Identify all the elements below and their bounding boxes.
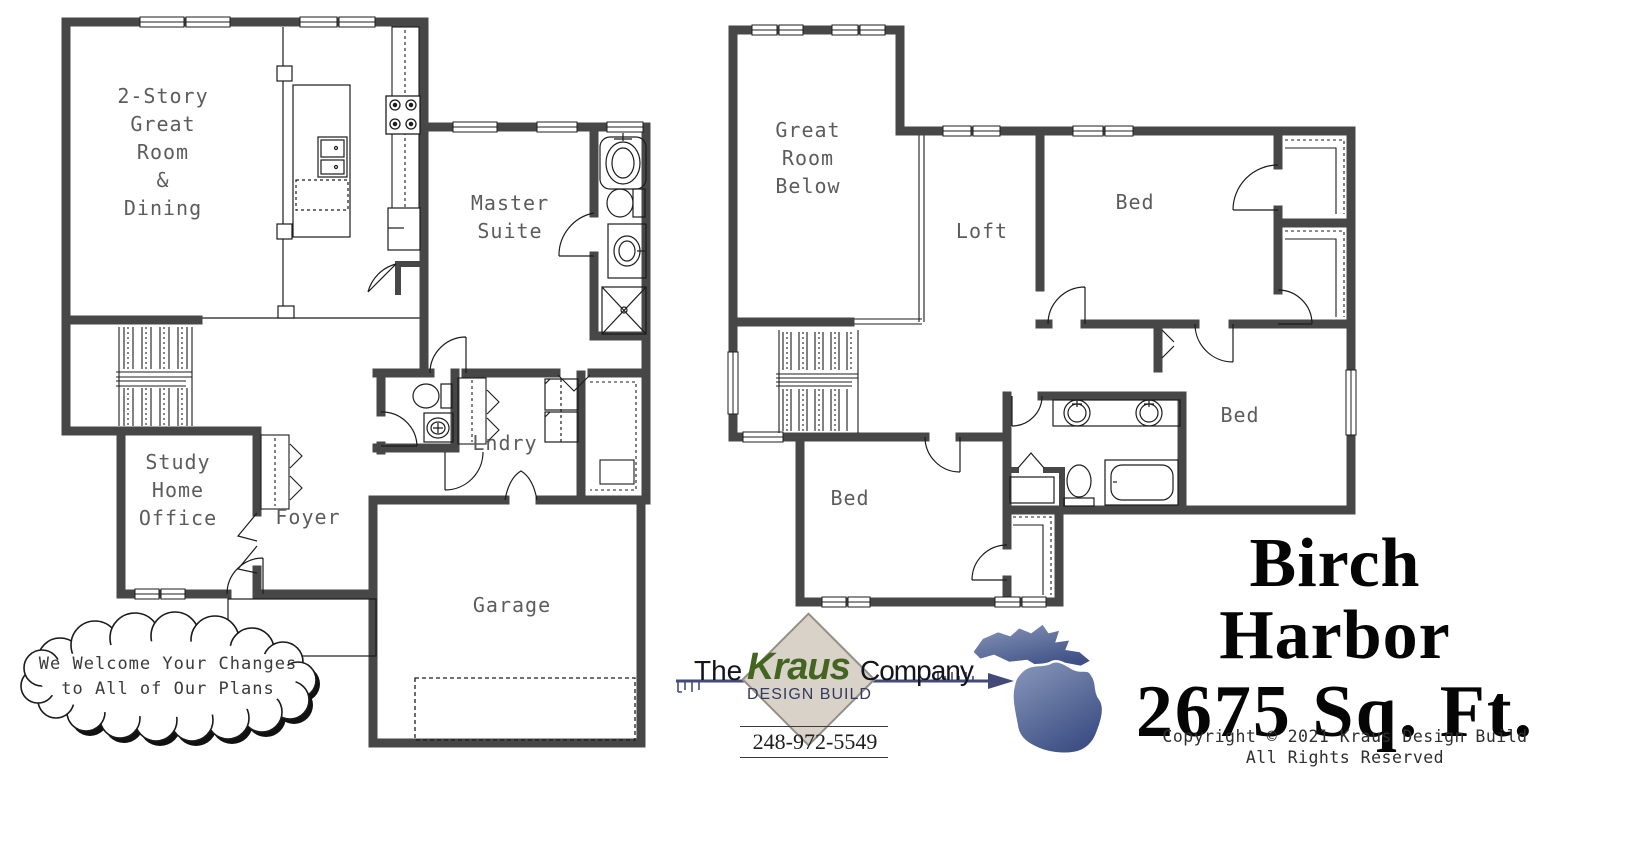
stove-icon [386,96,420,134]
copyright-line1: Copyright © 2021 Kraus Design Build [1140,726,1550,747]
second-floor-windows [728,25,1356,607]
powder-sink-icon [424,413,453,442]
washer-dryer-icon [545,379,578,442]
walkin-closet-shelves [558,375,636,490]
bathtub-icon-2 [1105,460,1178,505]
walkin-closet-2 [1013,517,1051,595]
kitchen-boundary-line [198,27,424,318]
foyer-closet [261,435,302,509]
michigan-icon [972,623,1103,754]
room-label-foyer: Foyer [275,503,340,531]
toilet-icon [607,189,645,217]
bedroom-closets [1285,140,1344,317]
cloud-callout-text: We Welcome Your Changes to All of Our Pl… [39,652,297,702]
room-label-garage: Garage [473,591,551,619]
double-vanity [1053,400,1180,426]
room-label-master-suite: Master Suite [471,189,549,245]
room-label-study: Study Home Office [139,448,217,532]
stairs [116,327,192,426]
vanity-sink-icon [608,224,646,278]
shower-icon [602,287,646,334]
garage-door [415,678,635,740]
copyright-line2: All Rights Reserved [1140,747,1550,768]
powder-toilet-icon [413,384,452,408]
kitchen-island [293,85,350,237]
plan-title-name: Birch Harbor [1130,528,1540,672]
loft-railing [850,135,924,324]
logo-the: The [694,655,742,687]
room-label-great-room-below: Great Room Below [775,116,840,200]
toilet-icon-2 [1064,465,1094,506]
refrigerator-icon [388,208,420,250]
phone-number: 248-972-5549 [740,729,890,755]
plan-title: Birch Harbor 2675 Sq. Ft. [1130,528,1540,752]
first-floor-doors [227,213,594,594]
copyright-notice: Copyright © 2021 Kraus Design Build All … [1140,726,1550,768]
logo-tagline: DESIGN BUILD [747,686,872,704]
michigan-lower-peninsula [1012,661,1103,754]
second-floor-plan [728,25,1356,607]
room-label-great-room: 2-Story Great Room & Dining [117,82,208,222]
michigan-upper-peninsula [972,623,1092,669]
room-label-bed-1: Bed [1115,188,1154,216]
room-label-bed-3: Bed [830,484,869,512]
logo-company: Company [860,655,973,687]
phone-rule-bottom [740,757,888,758]
room-label-laundry: Lndry [472,429,537,457]
floor-plan-sheet: 2-Story Great Room & Dining Master Suite… [0,0,1647,841]
linen-counter [1010,477,1054,503]
room-label-loft: Loft [956,217,1008,245]
logo-kraus: Kraus [747,646,850,689]
column-posts [277,66,294,318]
room-label-bed-2: Bed [1220,401,1259,429]
stairs-second-floor [776,330,858,433]
bathtub-icon [600,133,646,189]
phone-rule-top [740,726,888,727]
